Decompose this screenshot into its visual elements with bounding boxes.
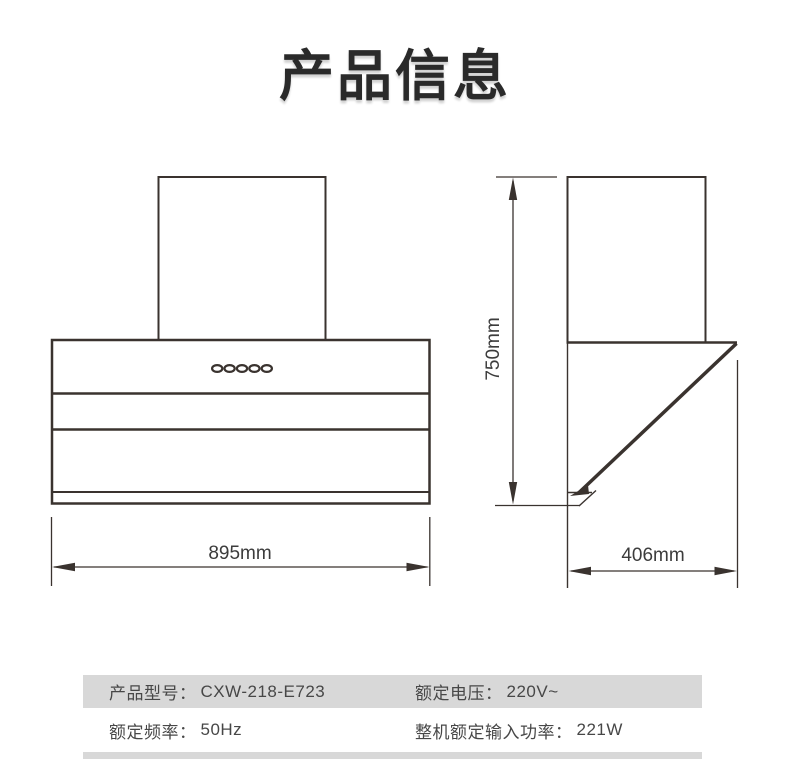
table-row: 额定频率： 50Hz 整机额定输入功率： 221W (83, 708, 702, 752)
slanted-panel-line (578, 344, 737, 494)
arrow-down-icon (509, 482, 517, 505)
spec-label: 整机额定输入功率： (415, 718, 573, 743)
table-row-partial (83, 752, 702, 759)
dimension-diagram: 895mm 750mm (0, 0, 790, 620)
height-dimension: 750mm (483, 177, 580, 506)
spec-table: 产品型号： CXW-218-E723 额定电压： 220V~ 额定频率： 50H… (83, 675, 702, 759)
spec-label: 额定频率： (109, 718, 197, 743)
product-info-page: 产品信息 895mm (0, 0, 790, 759)
arrow-left-icon (569, 567, 592, 575)
spec-value: 220V~ (507, 682, 559, 702)
arrow-right-icon (407, 563, 430, 571)
front-chimney-outline (159, 177, 326, 340)
arrow-up-icon (509, 178, 517, 201)
depth-dimension: 406mm (569, 360, 738, 588)
spec-value: 221W (577, 720, 623, 740)
spec-model: 产品型号： CXW-218-E723 (83, 679, 415, 704)
spec-label: 产品型号： (109, 679, 197, 704)
spec-value: CXW-218-E723 (201, 682, 326, 702)
arrow-left-icon (52, 563, 75, 571)
side-chimney-outline (568, 177, 706, 343)
arrow-right-icon (715, 567, 738, 575)
spec-voltage: 额定电压： 220V~ (415, 679, 702, 704)
control-buttons (212, 365, 272, 372)
width-dimension-label: 895mm (208, 543, 271, 564)
range-hood-front-view (52, 177, 430, 504)
spec-value: 50Hz (201, 720, 243, 740)
table-row: 产品型号： CXW-218-E723 额定电压： 220V~ (83, 675, 702, 708)
height-dimension-label: 750mm (483, 317, 504, 380)
range-hood-side-view (567, 177, 738, 588)
spec-label: 额定电压： (415, 679, 503, 704)
width-dimension: 895mm (52, 517, 430, 586)
spec-frequency: 额定频率： 50Hz (83, 718, 415, 743)
spec-power: 整机额定输入功率： 221W (415, 718, 702, 743)
depth-dimension-label: 406mm (621, 545, 684, 566)
